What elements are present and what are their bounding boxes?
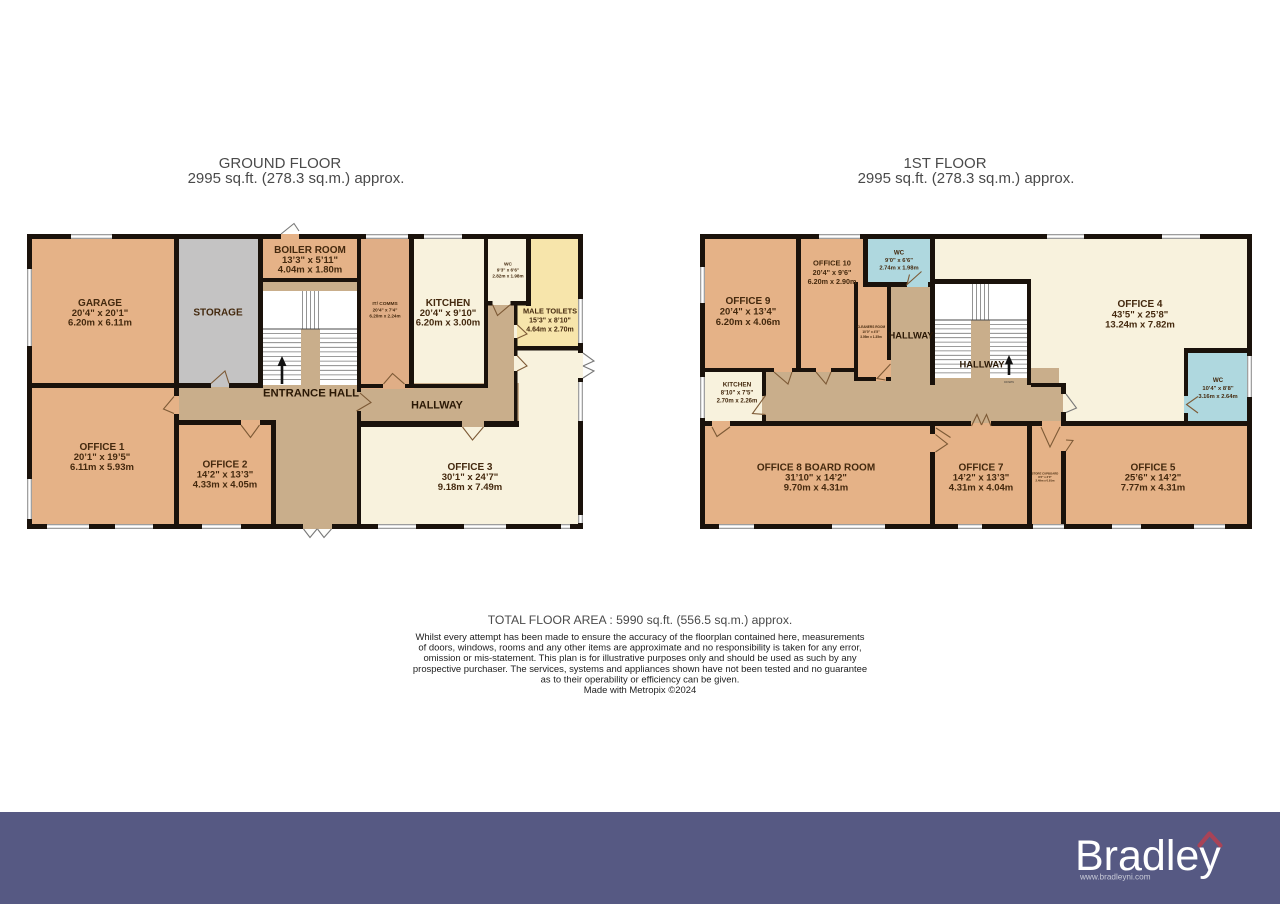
svg-text:15’3" x 8’10": 15’3" x 8’10" [529,318,571,325]
svg-text:6.20m x 3.00m: 6.20m x 3.00m [416,317,480,328]
svg-text:2995 sq.ft. (278.3 sq.m.) appr: 2995 sq.ft. (278.3 sq.m.) approx. [188,170,405,187]
svg-text:10’0" x 4’5": 10’0" x 4’5" [862,330,880,334]
svg-text:HALLWAY: HALLWAY [411,399,464,411]
svg-text:6.20m x 6.11m: 6.20m x 6.11m [68,317,132,328]
svg-text:2.82m x 1.98m: 2.82m x 1.98m [492,274,523,279]
svg-text:of doors, windows, rooms and a: of doors, windows, rooms and any other i… [418,643,861,654]
svg-text:ENTRANCE HALL: ENTRANCE HALL [263,388,359,400]
svg-text:OFFICE 4: OFFICE 4 [1117,299,1162,310]
svg-text:10’4" x 8’8": 10’4" x 8’8" [1202,386,1234,392]
svg-text:9’3" x 6’6": 9’3" x 6’6" [497,268,519,273]
svg-text:6.11m x 5.93m: 6.11m x 5.93m [70,462,134,473]
svg-text:TOTAL FLOOR AREA : 5990 sq.ft.: TOTAL FLOOR AREA : 5990 sq.ft. (556.5 sq… [488,613,793,627]
svg-text:3.05m x 1.35m: 3.05m x 1.35m [860,335,882,339]
svg-text:Whilst every attempt has been: Whilst every attempt has been made to en… [415,632,864,643]
svg-text:4.04m x 1.80m: 4.04m x 1.80m [278,264,342,275]
svg-text:4.64m x 2.70m: 4.64m x 2.70m [526,327,573,334]
svg-text:8’10" x 7’5": 8’10" x 7’5" [721,391,754,397]
svg-text:HALLWAY: HALLWAY [889,329,935,340]
svg-text:HALLWAY: HALLWAY [960,358,1006,369]
svg-text:CLEANERS ROOM: CLEANERS ROOM [857,325,886,329]
svg-text:www.bradleyni.com: www.bradleyni.com [1079,873,1151,882]
svg-text:9.70m x 4.31m: 9.70m x 4.31m [784,482,848,493]
svg-text:3.16m x 2.64m: 3.16m x 2.64m [1198,394,1237,400]
svg-text:20’4" x 13’4": 20’4" x 13’4" [720,307,777,318]
svg-text:2.49m x 0.91m: 2.49m x 0.91m [1036,479,1055,483]
svg-text:4.33m x 4.05m: 4.33m x 4.05m [193,479,257,490]
svg-text:DOWN: DOWN [1004,380,1014,384]
svg-text:9’0" x 6’6": 9’0" x 6’6" [885,258,913,264]
svg-text:6.20m x 2.90m: 6.20m x 2.90m [808,277,857,286]
svg-text:KITCHEN: KITCHEN [723,382,752,389]
svg-text:6.20m x 2.24m: 6.20m x 2.24m [369,314,400,319]
svg-text:OFFICE 10: OFFICE 10 [813,259,851,268]
svg-text:6.20m x 4.06m: 6.20m x 4.06m [716,317,780,328]
svg-text:20’4" x 9’6": 20’4" x 9’6" [813,268,852,277]
svg-text:2.74m x 1.98m: 2.74m x 1.98m [879,266,918,272]
svg-text:WC: WC [894,250,905,257]
svg-text:9.18m x 7.49m: 9.18m x 7.49m [438,482,502,493]
svg-text:STORAGE: STORAGE [193,308,243,319]
svg-text:13.24m x 7.82m: 13.24m x 7.82m [1105,320,1175,331]
svg-text:OFFICE 9: OFFICE 9 [725,296,770,307]
svg-text:Made with Metropix ©2024: Made with Metropix ©2024 [584,685,696,696]
svg-text:as to their operability or eff: as to their operability or efficiency ca… [541,674,740,685]
svg-text:MALE TOILETS: MALE TOILETS [523,307,577,316]
svg-text:20’4" x 7’4": 20’4" x 7’4" [373,307,398,312]
svg-text:7.77m x 4.31m: 7.77m x 4.31m [1121,482,1185,493]
svg-text:IT/ COMMS: IT/ COMMS [372,301,398,307]
svg-text:2.70m x 2.26m: 2.70m x 2.26m [717,399,758,405]
svg-text:prospective purchaser. The ser: prospective purchaser. The services, sys… [413,664,867,675]
svg-text:WC: WC [1213,377,1224,384]
svg-text:4.31m x 4.04m: 4.31m x 4.04m [949,482,1013,493]
svg-text:2995 sq.ft. (278.3 sq.m.) appr: 2995 sq.ft. (278.3 sq.m.) approx. [858,170,1075,187]
svg-text:omission or mis-statement. Thi: omission or mis-statement. This plan is … [423,653,856,664]
